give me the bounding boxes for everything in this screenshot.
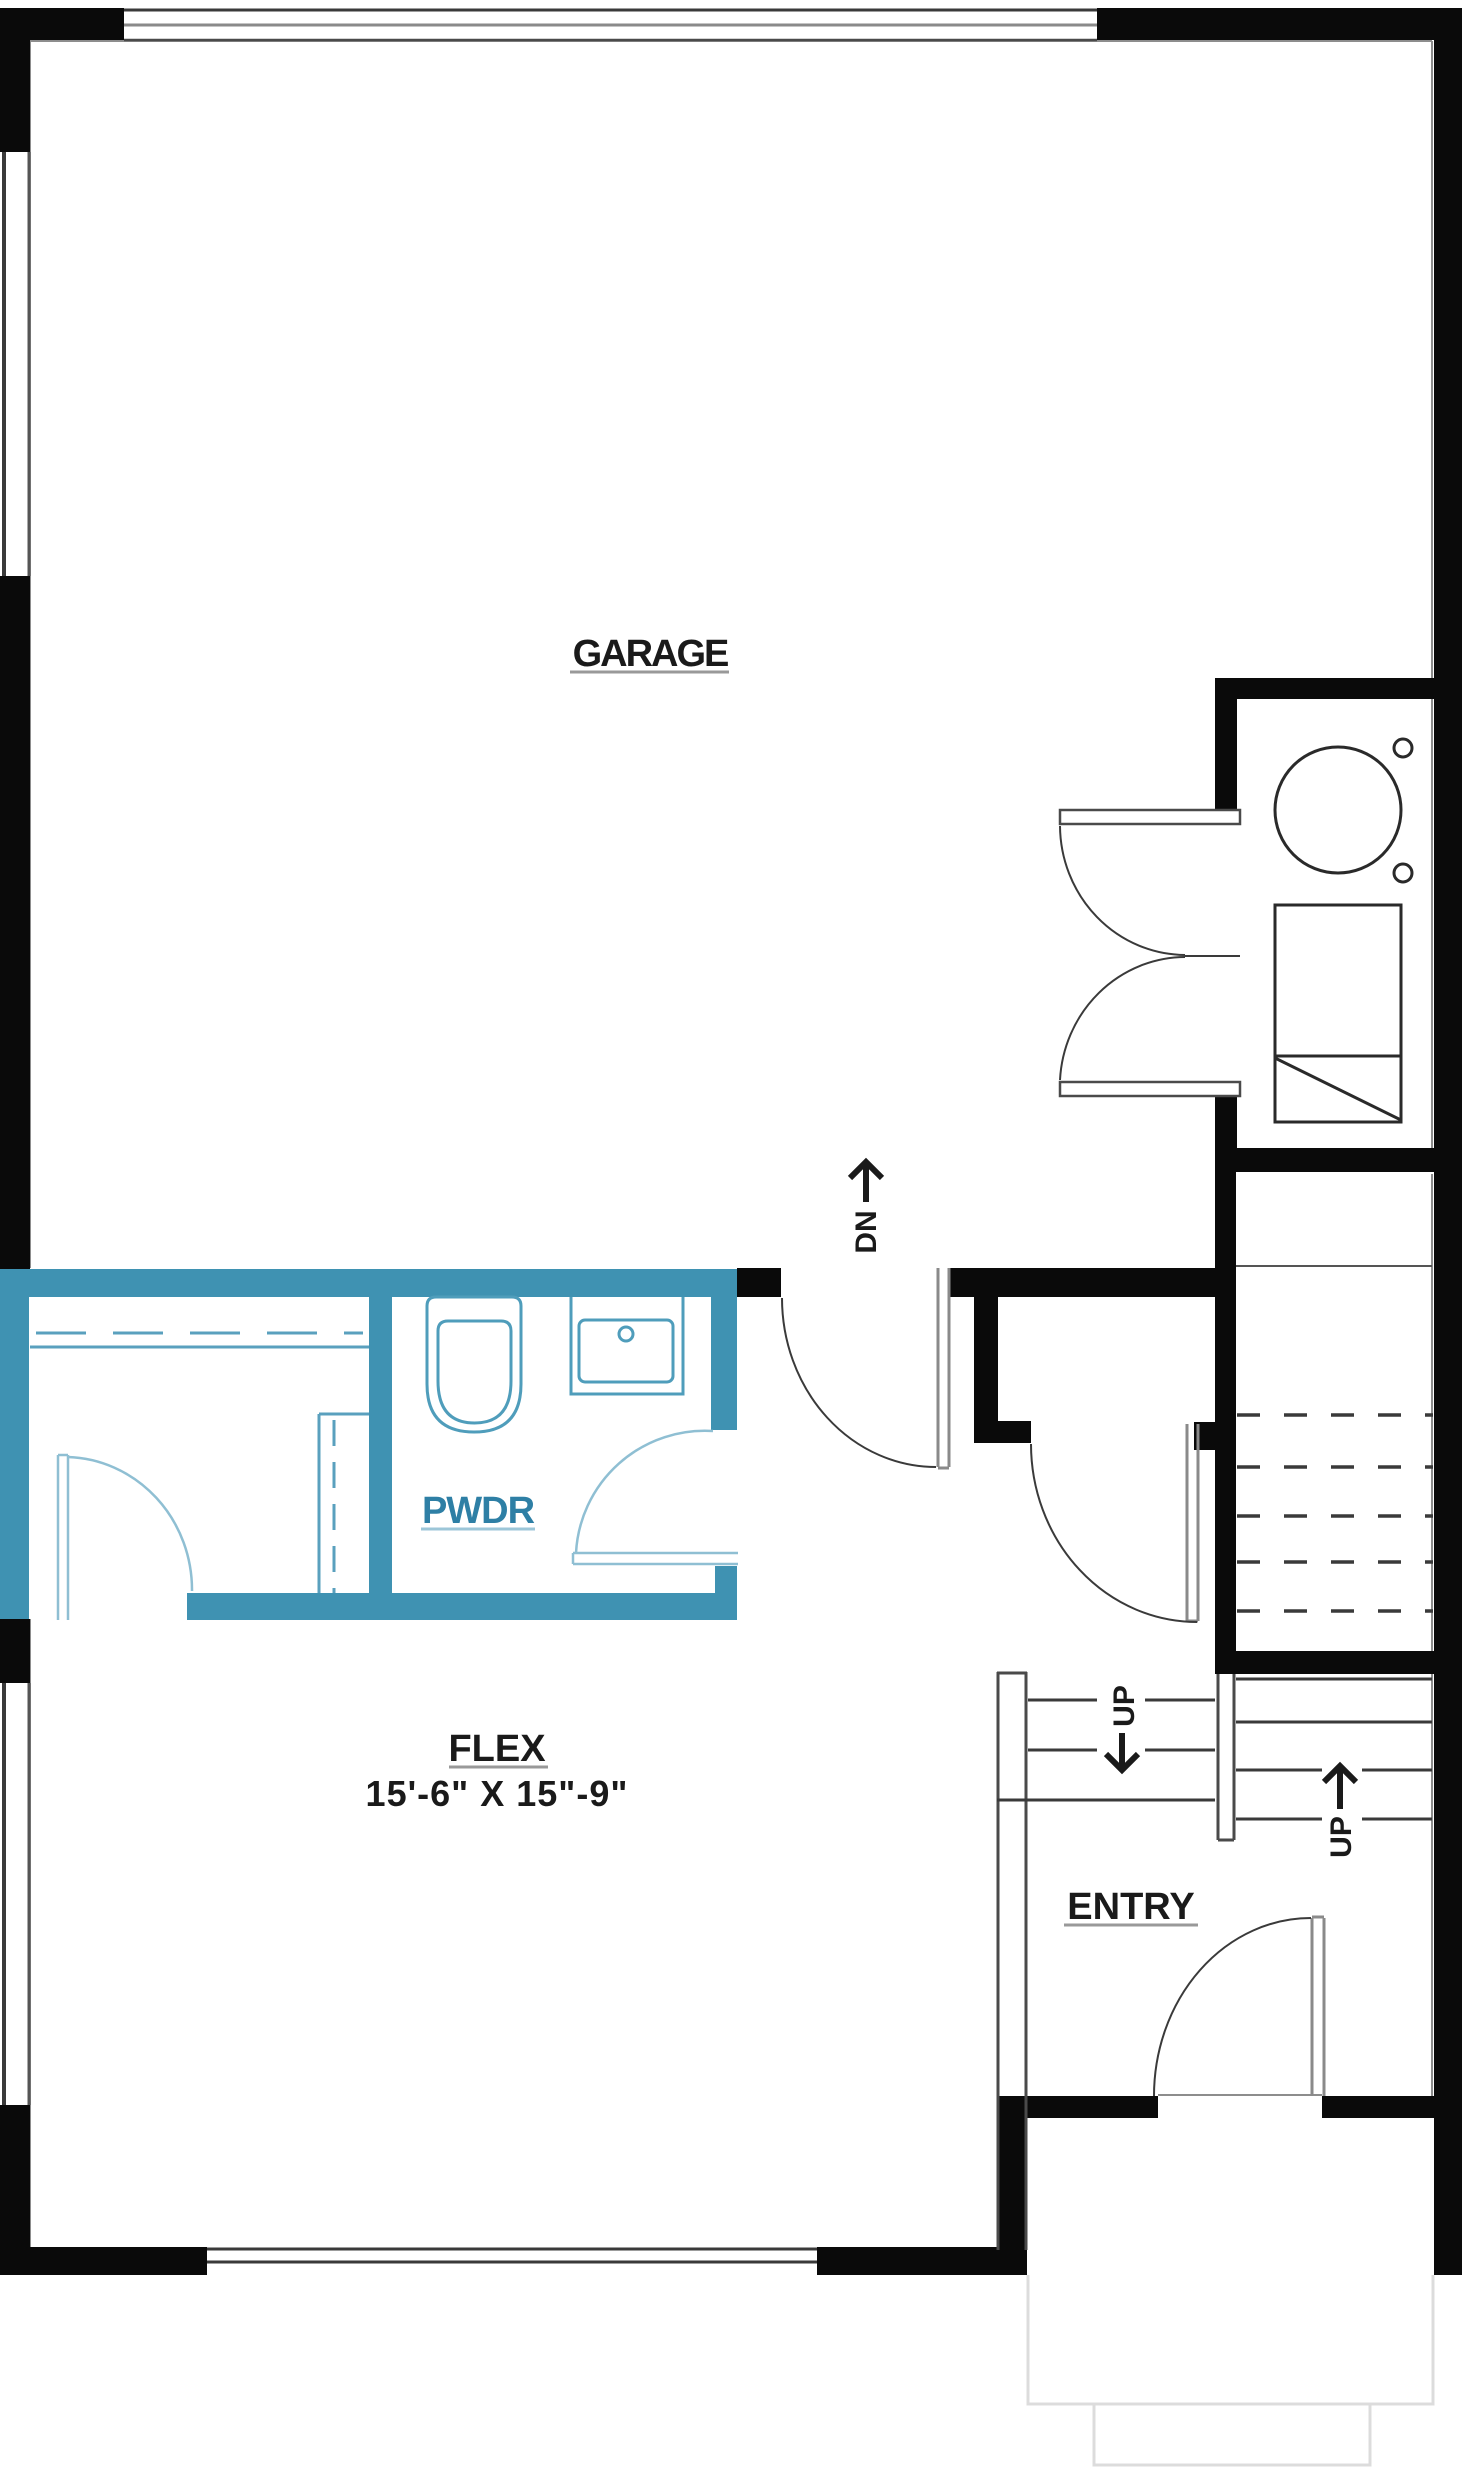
svg-text:15'-6" X 15"-9": 15'-6" X 15"-9" (366, 1773, 629, 1814)
svg-text:FLEX: FLEX (448, 1728, 546, 1770)
svg-text:UP: UP (1325, 1816, 1358, 1858)
svg-text:GARAGE: GARAGE (573, 633, 728, 675)
svg-text:ENTRY: ENTRY (1067, 1886, 1194, 1928)
svg-text:UP: UP (1108, 1685, 1141, 1727)
svg-text:PWDR: PWDR (422, 1490, 535, 1532)
svg-text:DN: DN (850, 1210, 883, 1253)
